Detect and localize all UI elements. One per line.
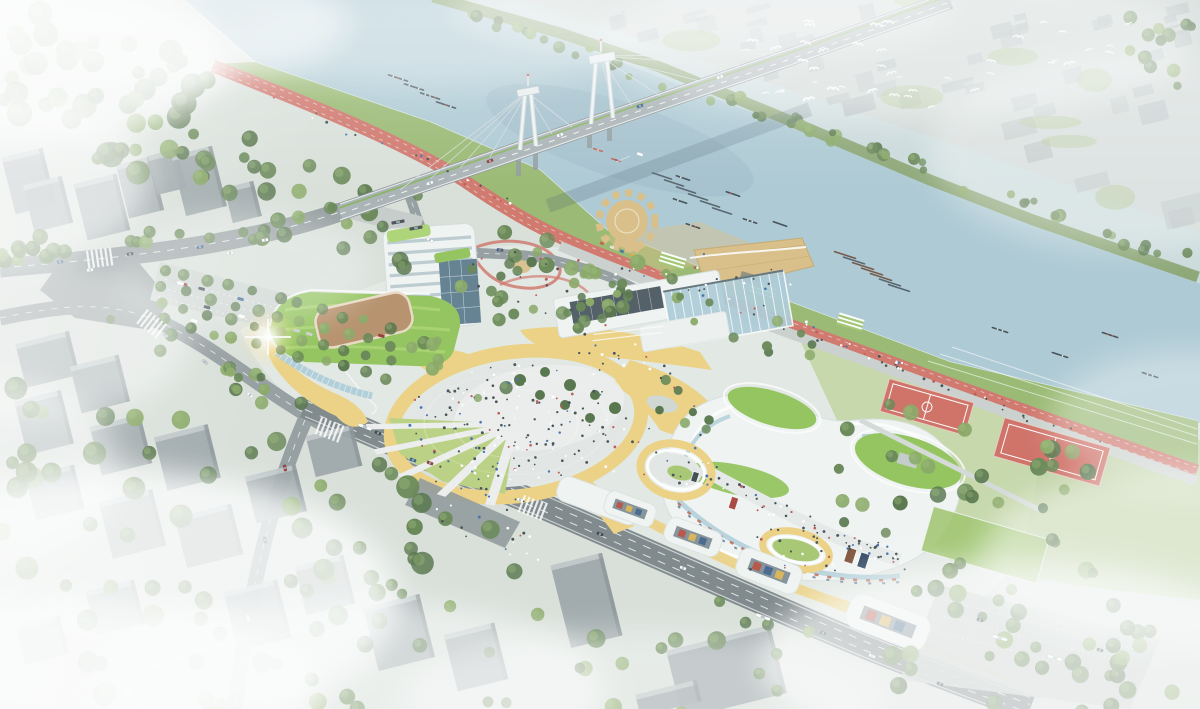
person-dot bbox=[600, 394, 602, 396]
person-dot bbox=[763, 505, 765, 507]
person-dot bbox=[532, 365, 534, 367]
tree-highlight bbox=[617, 301, 624, 308]
person-dot bbox=[534, 418, 536, 420]
person-dot bbox=[660, 377, 662, 379]
person-dot bbox=[477, 285, 480, 288]
person-dot bbox=[508, 446, 510, 448]
person-dot bbox=[463, 183, 466, 186]
tree-highlight bbox=[434, 355, 440, 361]
tree-highlight bbox=[304, 160, 311, 167]
person-dot bbox=[537, 476, 539, 478]
person-dot bbox=[816, 532, 818, 534]
tree-highlight bbox=[249, 161, 256, 168]
person-dot bbox=[643, 362, 645, 364]
person-dot bbox=[470, 251, 472, 253]
person-dot bbox=[471, 371, 473, 373]
person-dot bbox=[753, 307, 755, 309]
tree bbox=[676, 293, 684, 301]
person-dot bbox=[685, 483, 688, 486]
person-dot bbox=[598, 430, 601, 433]
person-dot bbox=[457, 387, 459, 389]
tree-highlight bbox=[399, 478, 411, 490]
tree-highlight bbox=[805, 126, 811, 132]
person-dot bbox=[932, 380, 935, 383]
tree-highlight bbox=[909, 154, 915, 160]
tree-highlight bbox=[243, 132, 251, 140]
person-dot bbox=[534, 456, 537, 459]
person-dot bbox=[779, 505, 782, 508]
person-dot bbox=[848, 545, 851, 548]
tree-highlight bbox=[261, 164, 269, 172]
tree bbox=[805, 350, 816, 361]
person-dot bbox=[710, 478, 713, 481]
person-dot bbox=[513, 457, 515, 459]
tree-highlight bbox=[994, 498, 1000, 504]
person-dot bbox=[489, 429, 491, 431]
person-dot bbox=[529, 444, 532, 447]
person-dot bbox=[505, 548, 507, 550]
person-dot bbox=[597, 402, 599, 404]
person-dot bbox=[874, 557, 876, 559]
person-dot bbox=[479, 421, 482, 424]
person-dot bbox=[501, 435, 503, 437]
tree bbox=[586, 298, 595, 307]
person-dot bbox=[545, 278, 548, 281]
person-dot bbox=[812, 326, 814, 328]
person-dot bbox=[947, 389, 949, 391]
tree-highlight bbox=[339, 346, 345, 352]
tree bbox=[385, 341, 396, 352]
person-dot bbox=[666, 460, 668, 462]
person-dot bbox=[516, 378, 519, 381]
person-dot bbox=[495, 400, 498, 403]
person-dot bbox=[574, 453, 576, 455]
person-dot bbox=[426, 414, 428, 416]
tree-highlight bbox=[413, 554, 424, 565]
tree-highlight bbox=[381, 375, 387, 381]
person-dot bbox=[570, 309, 573, 312]
person-dot bbox=[783, 328, 785, 330]
person-dot bbox=[492, 396, 495, 399]
person-dot bbox=[862, 559, 865, 562]
person-dot bbox=[516, 386, 519, 389]
tree bbox=[613, 290, 621, 298]
person-dot bbox=[483, 451, 485, 453]
tree-highlight bbox=[976, 470, 983, 477]
person-dot bbox=[716, 278, 718, 280]
person-dot bbox=[813, 535, 816, 538]
tree bbox=[705, 298, 713, 306]
tree-highlight bbox=[493, 297, 499, 303]
person-dot bbox=[753, 313, 755, 315]
person-dot bbox=[820, 550, 822, 552]
person-dot bbox=[548, 428, 550, 430]
tree bbox=[226, 367, 236, 377]
person-dot bbox=[790, 550, 792, 552]
person-dot bbox=[614, 273, 617, 276]
tree bbox=[881, 528, 891, 538]
person-dot bbox=[602, 363, 604, 365]
person-dot bbox=[560, 405, 562, 407]
person-dot bbox=[688, 289, 690, 291]
person-dot bbox=[558, 472, 560, 474]
person-dot bbox=[663, 365, 666, 368]
tree-highlight bbox=[910, 453, 917, 460]
person-dot bbox=[354, 134, 356, 136]
tree bbox=[729, 332, 739, 342]
person-dot bbox=[532, 399, 535, 402]
person-dot bbox=[606, 440, 609, 443]
person-dot bbox=[828, 537, 830, 539]
person-dot bbox=[854, 537, 856, 539]
person-dot bbox=[895, 361, 898, 364]
tree-highlight bbox=[668, 274, 674, 280]
person-dot bbox=[450, 409, 452, 411]
tree-highlight bbox=[508, 565, 516, 573]
person-dot bbox=[1026, 420, 1028, 422]
person-dot bbox=[774, 502, 776, 504]
person-dot bbox=[599, 369, 601, 371]
tree bbox=[702, 425, 711, 434]
person-dot bbox=[434, 416, 436, 418]
tree bbox=[597, 314, 607, 324]
gear-dock-deck bbox=[606, 200, 648, 242]
person-dot bbox=[612, 426, 614, 428]
person-dot bbox=[592, 390, 595, 393]
tree bbox=[655, 406, 664, 415]
person-dot bbox=[605, 434, 607, 436]
person-dot bbox=[273, 97, 275, 99]
person-dot bbox=[809, 515, 811, 517]
person-dot bbox=[556, 370, 558, 372]
person-dot bbox=[415, 154, 417, 156]
person-dot bbox=[625, 417, 627, 419]
person-dot bbox=[461, 404, 463, 406]
person-dot bbox=[493, 444, 496, 447]
person-dot bbox=[806, 324, 808, 326]
person-dot bbox=[483, 391, 485, 393]
aerial-rendering-canvas bbox=[0, 0, 1200, 709]
person-dot bbox=[589, 424, 591, 426]
person-dot bbox=[613, 470, 615, 472]
person-dot bbox=[427, 158, 430, 161]
person-dot bbox=[868, 552, 871, 555]
person-dot bbox=[832, 565, 834, 567]
person-dot bbox=[743, 486, 745, 488]
person-dot bbox=[514, 441, 516, 443]
person-dot bbox=[768, 283, 770, 285]
tree-highlight bbox=[606, 307, 612, 313]
person-dot bbox=[821, 339, 823, 341]
person-dot bbox=[502, 417, 504, 419]
person-dot bbox=[485, 494, 487, 496]
person-dot bbox=[816, 339, 819, 342]
person-dot bbox=[513, 541, 515, 543]
tree-highlight bbox=[406, 543, 413, 550]
person-dot bbox=[478, 516, 481, 519]
person-dot bbox=[449, 391, 451, 393]
person-dot bbox=[464, 424, 466, 426]
person-dot bbox=[471, 470, 473, 472]
tree-highlight bbox=[408, 520, 416, 528]
person-dot bbox=[479, 185, 481, 187]
person-dot bbox=[569, 421, 571, 423]
person-dot bbox=[618, 355, 620, 357]
person-dot bbox=[571, 393, 574, 396]
person-dot bbox=[514, 251, 517, 254]
person-dot bbox=[895, 553, 898, 556]
person-dot bbox=[621, 267, 624, 270]
person-dot bbox=[672, 474, 675, 477]
tree-highlight bbox=[293, 352, 299, 358]
person-dot bbox=[601, 426, 604, 429]
person-dot bbox=[753, 278, 755, 280]
tree-highlight bbox=[499, 227, 506, 234]
tree-highlight bbox=[885, 400, 891, 406]
person-dot bbox=[756, 498, 758, 500]
person-dot bbox=[703, 288, 705, 290]
person-dot bbox=[618, 358, 620, 360]
person-dot bbox=[524, 382, 526, 384]
tree-highlight bbox=[246, 448, 253, 455]
person-dot bbox=[537, 559, 539, 561]
person-dot bbox=[706, 484, 708, 486]
tree bbox=[486, 286, 497, 297]
person-dot bbox=[786, 505, 788, 507]
person-dot bbox=[753, 542, 755, 544]
person-dot bbox=[435, 481, 437, 483]
person-dot bbox=[673, 386, 675, 388]
tree bbox=[808, 340, 817, 349]
person-dot bbox=[904, 568, 906, 570]
tree bbox=[322, 356, 332, 366]
tree bbox=[527, 257, 537, 267]
person-dot bbox=[770, 269, 772, 271]
person-dot bbox=[770, 528, 772, 530]
person-dot bbox=[544, 443, 547, 446]
person-dot bbox=[525, 437, 527, 439]
person-dot bbox=[875, 545, 877, 547]
person-dot bbox=[680, 476, 682, 478]
tree bbox=[188, 129, 199, 140]
tree-highlight bbox=[905, 406, 913, 414]
person-dot bbox=[546, 284, 548, 286]
person-dot bbox=[315, 112, 317, 114]
person-dot bbox=[745, 495, 747, 497]
person-dot bbox=[840, 344, 842, 346]
person-dot bbox=[858, 543, 860, 545]
person-dot bbox=[463, 392, 465, 394]
person-dot bbox=[446, 170, 448, 172]
person-dot bbox=[803, 530, 805, 532]
tree bbox=[504, 258, 515, 269]
person-dot bbox=[560, 474, 562, 476]
person-dot bbox=[556, 397, 558, 399]
tree bbox=[762, 341, 772, 351]
person-dot bbox=[823, 531, 825, 533]
person-dot bbox=[789, 283, 791, 285]
tree-highlight bbox=[144, 447, 151, 454]
person-dot bbox=[474, 472, 477, 475]
tree-highlight bbox=[501, 382, 508, 389]
tree-highlight bbox=[260, 385, 266, 391]
person-dot bbox=[420, 406, 423, 409]
person-dot bbox=[473, 397, 475, 399]
person-dot bbox=[497, 429, 499, 431]
aerial-rendering bbox=[0, 0, 1200, 709]
person-dot bbox=[594, 344, 596, 346]
tree-highlight bbox=[297, 336, 303, 342]
tree-highlight bbox=[320, 324, 326, 330]
tree bbox=[209, 331, 218, 340]
tree-highlight bbox=[590, 268, 596, 274]
tree bbox=[919, 158, 927, 166]
tree-highlight bbox=[407, 343, 413, 349]
person-dot bbox=[843, 345, 845, 347]
person-dot bbox=[582, 407, 584, 409]
tree-highlight bbox=[440, 513, 447, 520]
person-dot bbox=[495, 468, 498, 471]
person-dot bbox=[546, 440, 548, 442]
tree-highlight bbox=[201, 468, 210, 477]
tree-highlight bbox=[631, 256, 639, 264]
person-dot bbox=[858, 540, 861, 543]
tree-highlight bbox=[330, 495, 339, 504]
person-dot bbox=[506, 527, 509, 530]
tree-highlight bbox=[256, 397, 263, 404]
tree-highlight bbox=[857, 499, 864, 506]
person-dot bbox=[581, 435, 584, 438]
person-dot bbox=[548, 470, 550, 472]
tree-highlight bbox=[566, 262, 573, 269]
person-dot bbox=[849, 343, 851, 345]
person-dot bbox=[763, 305, 765, 307]
person-dot bbox=[760, 538, 763, 541]
person-dot bbox=[556, 411, 558, 413]
tree-highlight bbox=[841, 423, 848, 430]
person-dot bbox=[433, 451, 435, 453]
person-dot bbox=[705, 475, 708, 478]
person-dot bbox=[470, 437, 473, 440]
tree-highlight bbox=[319, 340, 325, 346]
person-dot bbox=[738, 483, 741, 486]
person-dot bbox=[509, 478, 511, 480]
person-dot bbox=[740, 312, 742, 314]
person-dot bbox=[529, 441, 531, 443]
person-dot bbox=[602, 433, 604, 435]
person-dot bbox=[801, 553, 804, 556]
person-dot bbox=[784, 567, 786, 569]
person-dot bbox=[497, 475, 499, 477]
person-dot bbox=[778, 539, 781, 542]
person-dot bbox=[441, 520, 444, 523]
tree bbox=[834, 464, 844, 474]
tree bbox=[533, 247, 543, 257]
person-dot bbox=[506, 509, 508, 511]
person-dot bbox=[522, 532, 525, 535]
person-dot bbox=[458, 401, 460, 403]
person-dot bbox=[1001, 398, 1003, 400]
tree-highlight bbox=[603, 300, 609, 306]
person-dot bbox=[886, 553, 888, 555]
person-dot bbox=[545, 312, 547, 314]
person-dot bbox=[1023, 417, 1025, 419]
person-dot bbox=[493, 196, 495, 198]
tree-highlight bbox=[887, 451, 893, 457]
person-dot bbox=[834, 569, 836, 571]
person-dot bbox=[693, 405, 695, 407]
person-dot bbox=[897, 367, 899, 369]
person-dot bbox=[716, 466, 718, 468]
person-dot bbox=[487, 475, 489, 477]
person-dot bbox=[480, 487, 483, 490]
person-dot bbox=[439, 466, 441, 468]
person-dot bbox=[513, 372, 515, 374]
person-dot bbox=[523, 501, 525, 503]
person-dot bbox=[601, 391, 603, 393]
person-dot bbox=[414, 399, 416, 401]
person-dot bbox=[551, 421, 553, 423]
person-dot bbox=[837, 534, 839, 536]
tree-highlight bbox=[540, 259, 548, 267]
person-dot bbox=[453, 390, 456, 393]
tree-highlight bbox=[386, 324, 392, 330]
person-dot bbox=[802, 520, 805, 523]
tree-highlight bbox=[339, 361, 345, 367]
person-dot bbox=[814, 525, 816, 527]
person-dot bbox=[881, 361, 883, 363]
person-dot bbox=[536, 402, 538, 404]
person-dot bbox=[790, 511, 792, 513]
person-dot bbox=[613, 352, 616, 355]
tree-highlight bbox=[741, 618, 747, 624]
person-dot bbox=[688, 461, 690, 463]
tree-highlight bbox=[269, 434, 279, 444]
tree bbox=[327, 203, 337, 213]
person-dot bbox=[445, 413, 448, 416]
tree bbox=[433, 337, 442, 346]
tree-highlight bbox=[1032, 460, 1041, 469]
person-dot bbox=[497, 462, 499, 464]
person-dot bbox=[539, 257, 542, 260]
tree bbox=[496, 272, 505, 281]
tree-highlight bbox=[398, 261, 406, 269]
tree-highlight bbox=[427, 363, 434, 370]
person-dot bbox=[694, 447, 697, 450]
person-dot bbox=[481, 258, 483, 260]
person-dot bbox=[500, 424, 503, 427]
person-dot bbox=[702, 294, 705, 297]
tree-highlight bbox=[959, 424, 966, 431]
person-dot bbox=[902, 369, 904, 371]
tree bbox=[624, 289, 632, 297]
person-dot bbox=[785, 515, 788, 518]
person-dot bbox=[478, 478, 480, 480]
person-dot bbox=[519, 535, 521, 537]
person-dot bbox=[516, 407, 518, 409]
person-dot bbox=[877, 542, 879, 544]
tree bbox=[257, 373, 266, 382]
person-dot bbox=[728, 298, 730, 300]
person-dot bbox=[536, 443, 538, 445]
person-dot bbox=[678, 482, 681, 485]
person-dot bbox=[485, 488, 488, 491]
person-dot bbox=[488, 496, 490, 498]
person-dot bbox=[1022, 415, 1025, 418]
tree-highlight bbox=[494, 314, 501, 321]
person-dot bbox=[470, 395, 472, 397]
person-dot bbox=[447, 460, 449, 462]
